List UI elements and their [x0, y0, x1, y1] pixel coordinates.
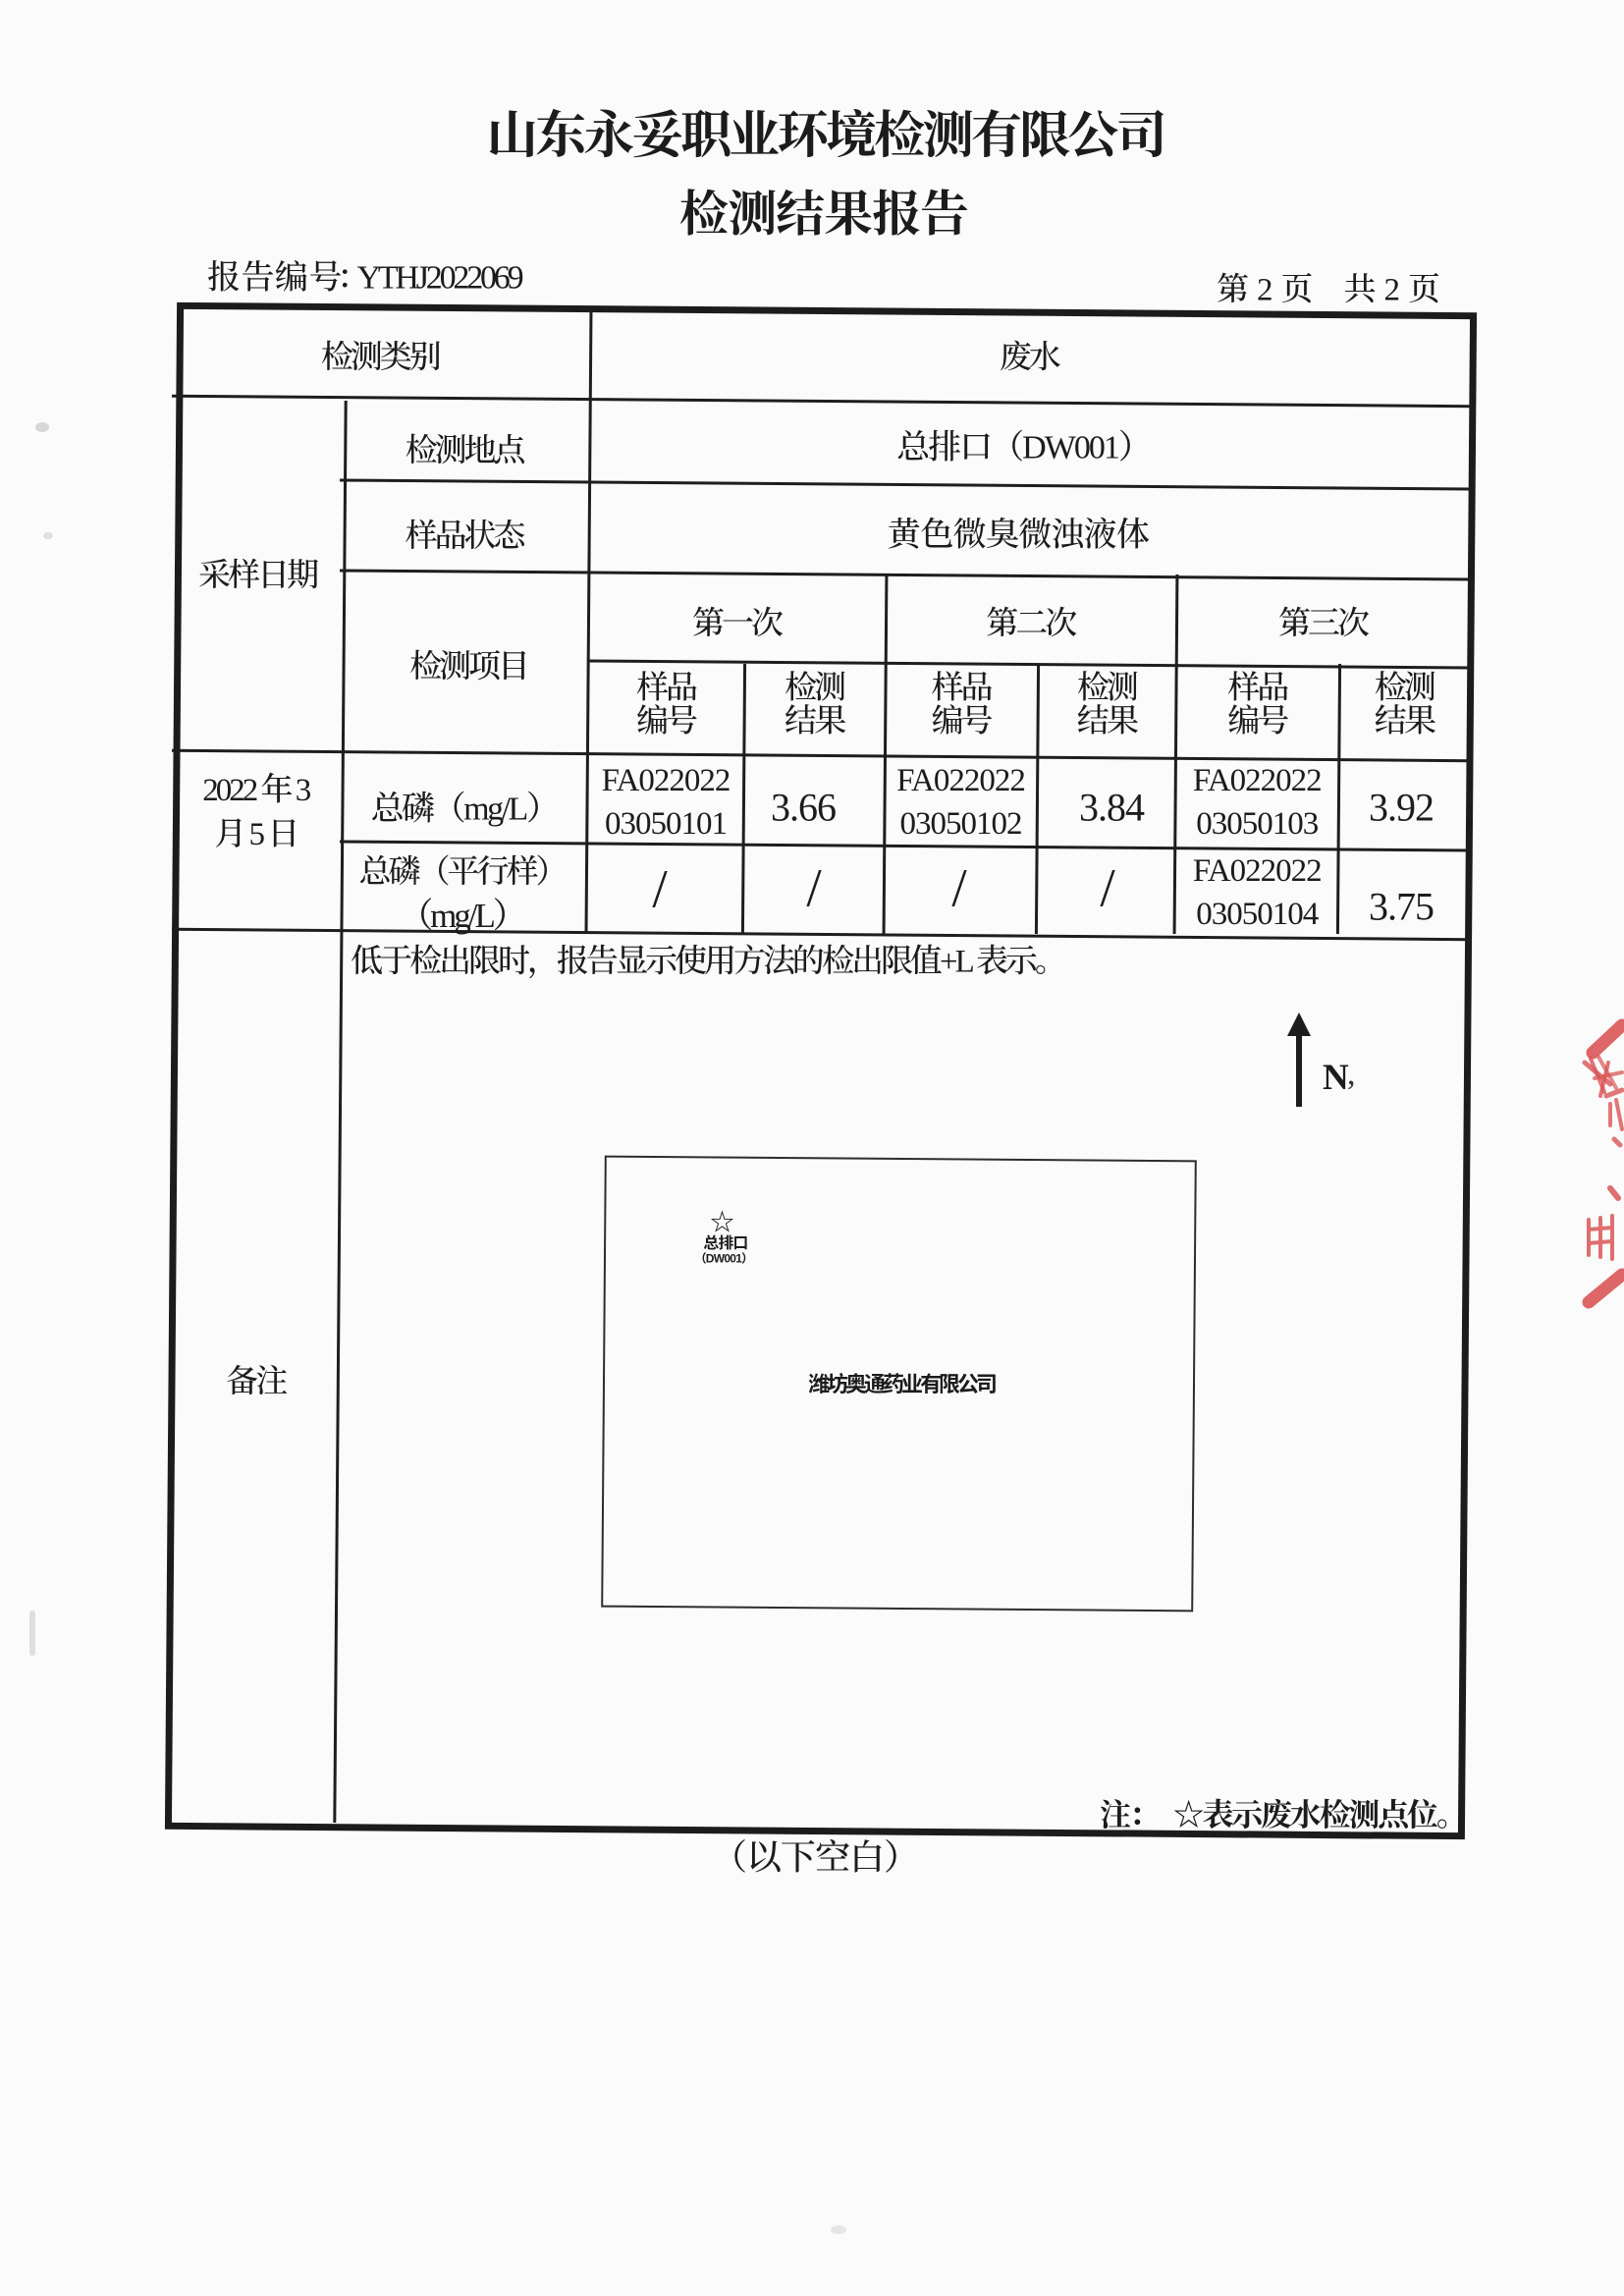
svg-text:,: , — [1347, 1056, 1356, 1092]
svg-text:N: N — [1323, 1058, 1349, 1098]
